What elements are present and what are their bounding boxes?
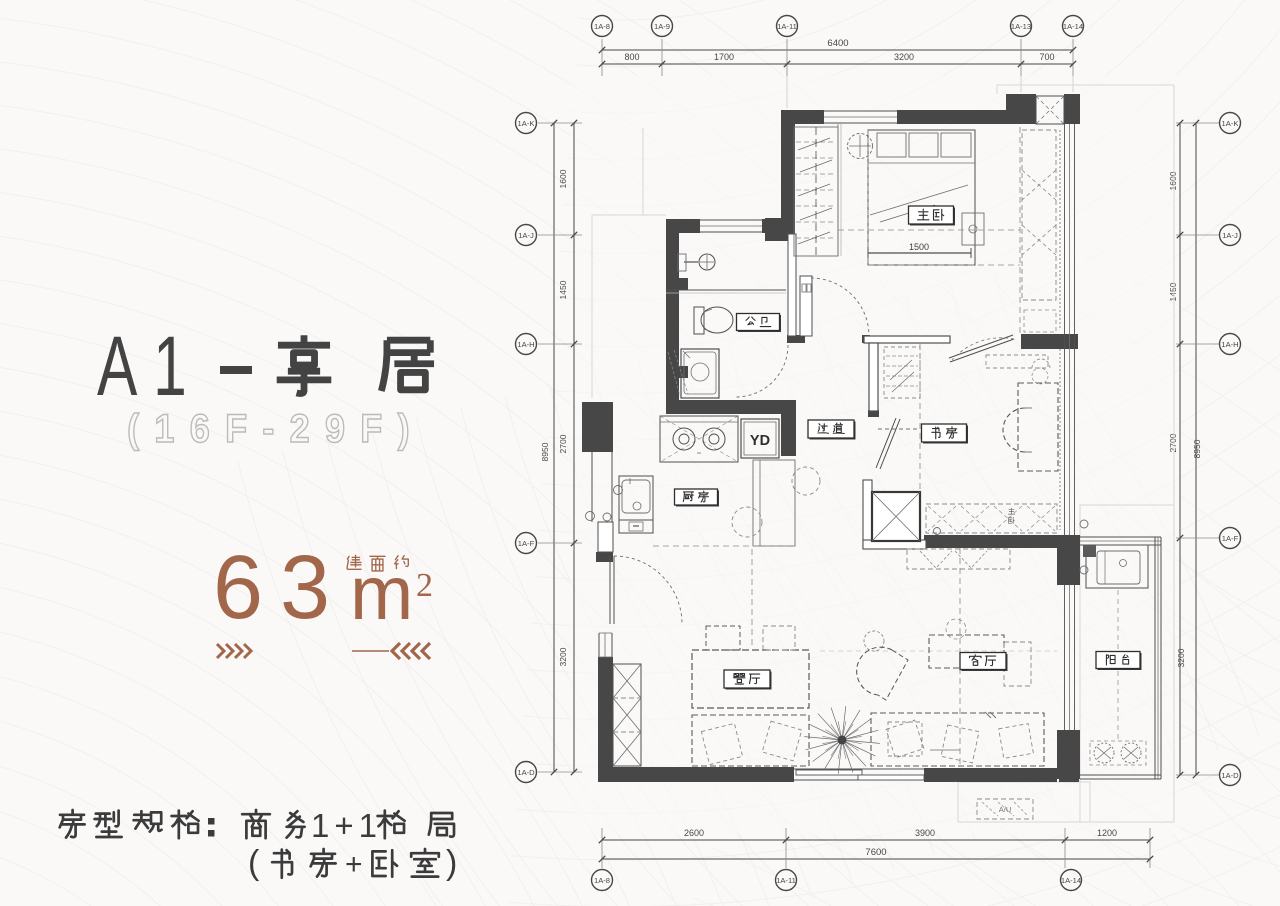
svg-text:1A-14: 1A-14 <box>1063 22 1083 31</box>
svg-text:1200: 1200 <box>1097 828 1117 838</box>
svg-text:A/U: A/U <box>999 805 1012 814</box>
svg-text:1A-F: 1A-F <box>1222 534 1239 543</box>
svg-text:1500: 1500 <box>909 242 929 252</box>
svg-text:A1: A1 <box>97 319 203 413</box>
svg-text:2: 2 <box>416 567 433 604</box>
svg-text:1600: 1600 <box>1168 171 1178 190</box>
svg-text:1600: 1600 <box>558 169 568 188</box>
svg-text:1700: 1700 <box>714 52 734 62</box>
svg-text:1A-J: 1A-J <box>518 231 534 240</box>
svg-text:1A-11: 1A-11 <box>776 876 796 885</box>
svg-text:63: 63 <box>213 538 347 638</box>
svg-text:800: 800 <box>624 52 639 62</box>
svg-text:2700: 2700 <box>558 434 568 453</box>
svg-text:): ) <box>446 844 457 882</box>
svg-text:1A-H: 1A-H <box>517 340 534 349</box>
svg-text:2700: 2700 <box>1168 433 1178 452</box>
svg-text:3200: 3200 <box>894 52 914 62</box>
svg-text:7600: 7600 <box>865 847 886 858</box>
svg-text:1A-11: 1A-11 <box>777 22 797 31</box>
svg-text:1A-13: 1A-13 <box>1011 22 1031 31</box>
svg-text:1A-H: 1A-H <box>1221 340 1238 349</box>
svg-text:3200: 3200 <box>1176 648 1186 667</box>
svg-text:1A-J: 1A-J <box>1222 231 1238 240</box>
svg-text:700: 700 <box>1039 52 1054 62</box>
svg-text:1A-D: 1A-D <box>517 768 535 777</box>
svg-text:2600: 2600 <box>684 828 704 838</box>
svg-text:1A-K: 1A-K <box>1222 119 1239 128</box>
svg-text:1A-14: 1A-14 <box>1061 876 1081 885</box>
svg-text:1A-9: 1A-9 <box>654 22 670 31</box>
svg-text:3900: 3900 <box>915 828 935 838</box>
svg-text:1A-8: 1A-8 <box>594 876 610 885</box>
svg-text:(16F-29F): (16F-29F) <box>127 407 425 451</box>
svg-text:6400: 6400 <box>827 38 848 49</box>
svg-text:8950: 8950 <box>1192 439 1202 458</box>
svg-text:1A-F: 1A-F <box>518 539 535 548</box>
svg-text:m: m <box>350 551 413 636</box>
svg-text:1450: 1450 <box>558 280 568 299</box>
svg-text:1450: 1450 <box>1168 282 1178 301</box>
svg-text:3200: 3200 <box>558 647 568 666</box>
svg-text:+: + <box>345 848 363 881</box>
svg-text:(: ( <box>248 844 260 882</box>
svg-text:1+1: 1+1 <box>311 807 382 844</box>
svg-text:8950: 8950 <box>540 442 550 461</box>
svg-text:1A-8: 1A-8 <box>594 22 610 31</box>
svg-text:YD: YD <box>750 433 770 449</box>
svg-text:1A-K: 1A-K <box>518 119 535 128</box>
svg-text:1A-D: 1A-D <box>1221 771 1239 780</box>
